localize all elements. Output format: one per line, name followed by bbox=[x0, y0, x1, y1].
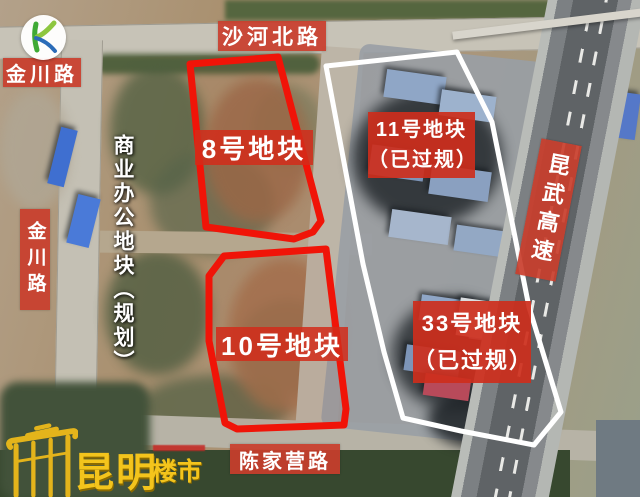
road-label-shahe-north: 沙河北路 bbox=[218, 21, 326, 51]
satellite-map: 8号地块 10号地块 11号地块 （已过规） 33号地块 （已过规） 商业办公地… bbox=[0, 0, 640, 497]
parcel-33-label: 33号地块 （已过规） bbox=[413, 301, 531, 383]
k-leaf-logo-icon bbox=[21, 15, 66, 60]
brand-watermark: 昆明 楼市 bbox=[6, 418, 236, 497]
watermark-tagline bbox=[153, 445, 205, 451]
commercial-office-parcel-note: 商业办公地块（规划） bbox=[101, 126, 137, 382]
road-label-jinchuan-top: 金川路 bbox=[3, 58, 81, 87]
parcel-10-label: 10号地块 bbox=[216, 327, 348, 361]
parcel-8-label: 8号地块 bbox=[195, 130, 313, 165]
archway-icon bbox=[6, 421, 78, 497]
parcel-11-label: 11号地块 （已过规） bbox=[368, 112, 475, 178]
road-label-chenjiaying: 陈家营路 bbox=[230, 444, 340, 474]
road-label-jinchuan-left: 金川路 bbox=[20, 209, 50, 310]
watermark-brand-primary: 昆明 bbox=[74, 440, 158, 497]
watermark-brand-secondary: 楼市 bbox=[152, 452, 202, 488]
k-leaf-logo bbox=[21, 15, 66, 60]
